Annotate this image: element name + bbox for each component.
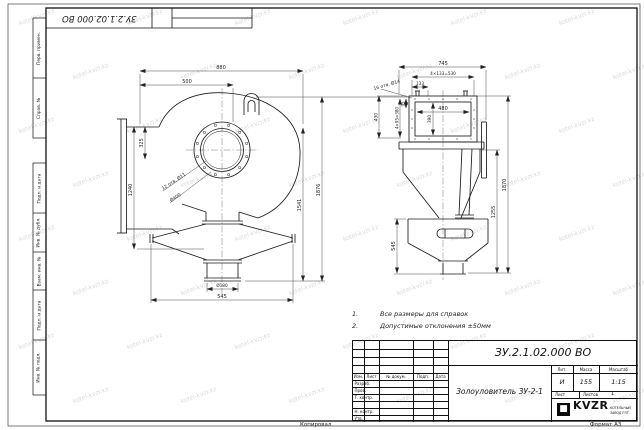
- dim-500: 500: [182, 79, 192, 85]
- dim-380: 4×95=380: [395, 107, 400, 129]
- copied-label: Копировал: [300, 422, 331, 428]
- tb-title: Золоуловитель ЗУ-2-1: [448, 387, 551, 396]
- strip-sprav-no: Справ. №: [33, 78, 46, 138]
- tb-col-podp: Подп.: [413, 375, 433, 379]
- tb-row-razrab: Разраб.: [355, 382, 371, 386]
- tb-row-utv: Утв.: [355, 417, 363, 421]
- dim-95: 95: [401, 101, 406, 107]
- top-stamp: ЗУ.2.1.02.000 ВО: [46, 8, 152, 28]
- dim-1255: 1255: [491, 206, 497, 219]
- dim-1541: 1541: [297, 199, 303, 212]
- tb-scale-header: Масштаб: [599, 367, 638, 372]
- dim-holes-front: 12 отв. Ø11: [160, 171, 187, 192]
- dim-d180: Ø180: [216, 283, 228, 288]
- dim-1240: 1240: [128, 184, 134, 197]
- dim-745: 745: [438, 61, 448, 67]
- tb-sheets-header: Листов: [583, 393, 598, 397]
- strip-vzam-inv: Взам. инв. №: [33, 252, 46, 290]
- note-1-text: Все размеры для справок: [380, 310, 468, 318]
- note-1-num: 1.: [352, 310, 358, 318]
- kvzr-logo-sub1: КОТЕЛЬНЫЙ: [610, 406, 631, 410]
- dim-390: 390: [427, 115, 432, 123]
- side-outline: [399, 91, 488, 274]
- side-dim-lines: [377, 67, 511, 274]
- top-stamp-number: ЗУ.2.1.02.000 ВО: [62, 13, 137, 23]
- format-label: Формат А3: [590, 422, 621, 428]
- dim-545-side: 545: [391, 241, 397, 251]
- kvzr-logo-text: KVZR: [573, 404, 608, 408]
- strip-podp-data-2: Подп. и дата: [33, 290, 46, 340]
- tb-row-tkontr: Т. контр.: [355, 396, 374, 400]
- front-outline: [117, 93, 300, 281]
- dim-d400: Ø400: [168, 191, 182, 204]
- tb-doc-number: ЗУ.2.1.02.000 ВО: [448, 346, 638, 359]
- dim-880: 880: [216, 65, 226, 71]
- note-2-num: 2.: [352, 322, 358, 330]
- tb-lit-header: Лит.: [551, 367, 573, 372]
- tb-mass-value: 155: [573, 378, 599, 386]
- dim-1870: 1870: [502, 179, 508, 192]
- dim-545-front: 545: [217, 294, 227, 300]
- drawing-sheet: kotel-kvzr.kzkotel-kvzr.kzkotel-kvzr.kzk…: [0, 0, 644, 430]
- tb-col-list: Лист: [364, 375, 379, 379]
- tb-row-prov: Пров.: [355, 389, 367, 393]
- dim-430: 430: [374, 113, 380, 122]
- strip-inv-podl: Инв. № подл.: [33, 340, 46, 395]
- strip-podp-data-1: Подп. и дата: [33, 163, 46, 213]
- dim-holes-side: 16 отв. Ø14: [373, 78, 401, 92]
- strip-inv-dubl: Инв. № дубл.: [33, 213, 46, 252]
- tb-lit-value: И: [551, 378, 573, 386]
- tb-scale-value: 1:15: [599, 378, 638, 386]
- dim-480: 480: [438, 106, 448, 112]
- tb-col-dokum: № докум.: [379, 375, 413, 379]
- title-block: Изм. Лист № докум. Подп. Дата Разраб. Пр…: [352, 340, 637, 421]
- tb-col-izm: Изм.: [353, 375, 364, 379]
- tb-mass-header: Масса: [573, 367, 599, 372]
- tb-sheet-header: Лист: [555, 393, 565, 397]
- kvzr-logo-sub2: ЗАВОД РЛТ: [610, 411, 629, 415]
- dim-530: 4×133=530: [430, 71, 456, 76]
- kvzr-logo-icon: ■: [557, 403, 570, 416]
- side-view: 745 4×133=530 133 480 390 95 4×95=380 43…: [373, 61, 511, 280]
- note-2-text: Допустимые отклонения ±50мм: [380, 322, 491, 330]
- dim-1876: 1876: [316, 184, 322, 197]
- strip-perv-primen: Перв. примен.: [33, 18, 46, 78]
- tb-col-data: Дата: [433, 375, 448, 379]
- tb-row-nkontr: Н. контр.: [355, 410, 374, 414]
- dim-133: 133: [416, 81, 424, 86]
- front-view: 880 500 325 1240 1541 1876 545 Ø180 12 о…: [117, 65, 409, 303]
- dim-325: 325: [139, 138, 145, 148]
- tb-sheets-value: 1: [611, 392, 614, 396]
